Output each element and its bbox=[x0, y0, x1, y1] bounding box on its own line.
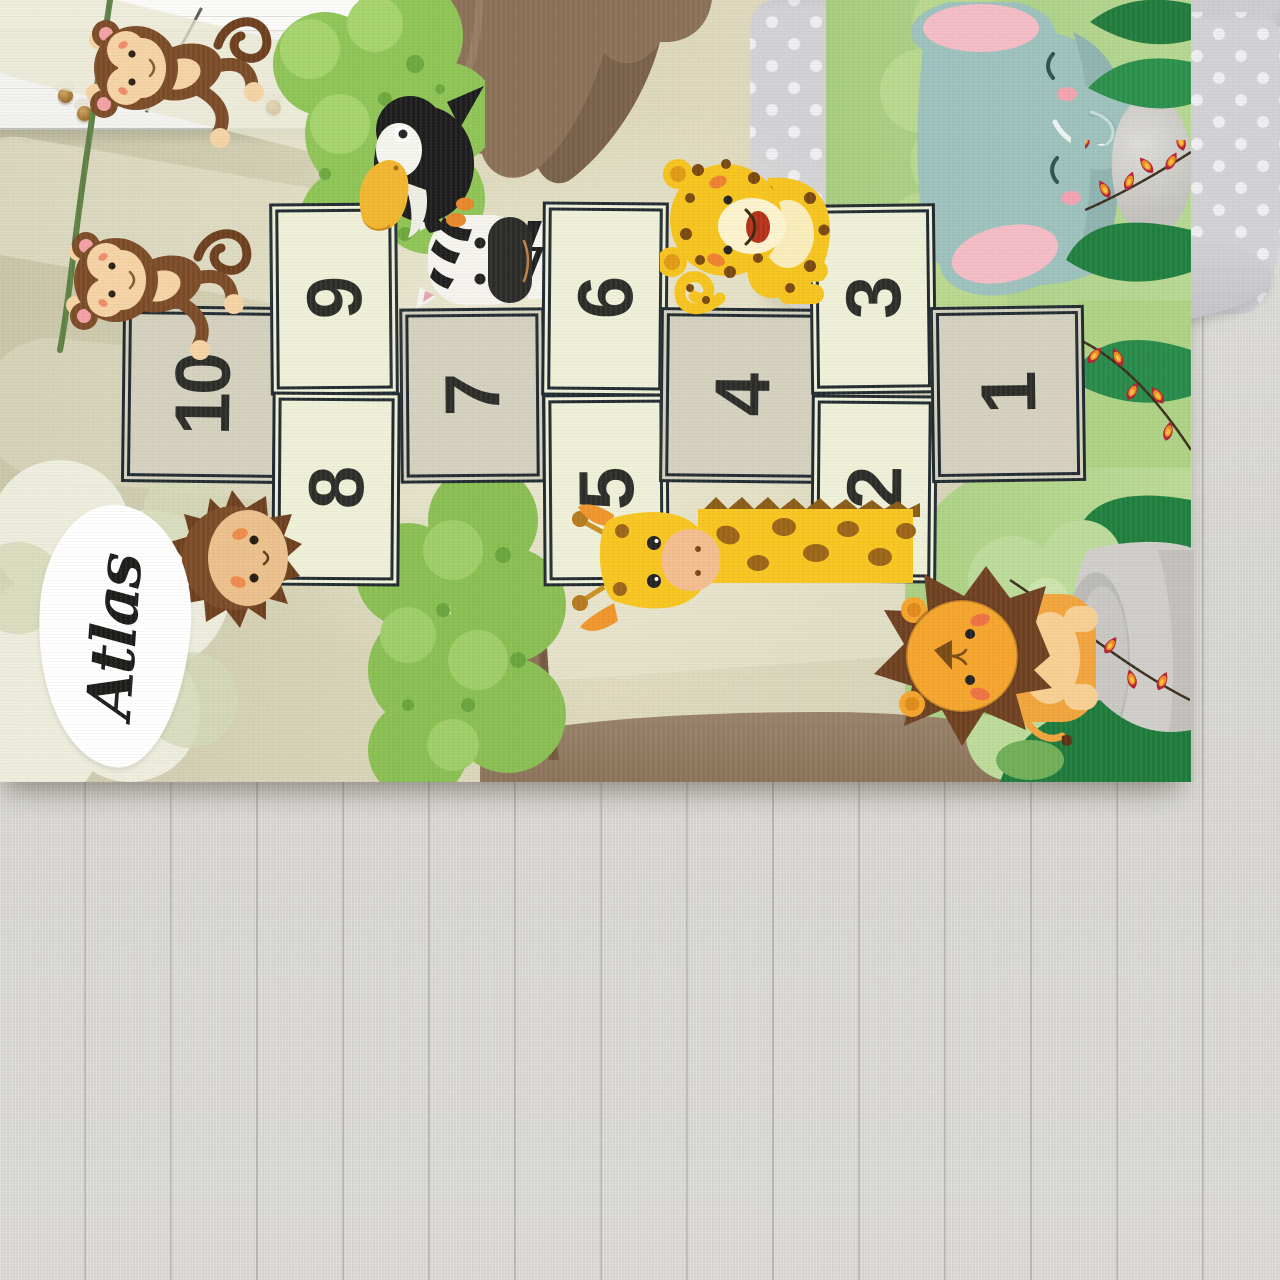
square-number: 1 bbox=[969, 373, 1048, 414]
square-number: 3 bbox=[834, 278, 912, 319]
berry-branch-icon bbox=[1085, 140, 1191, 250]
hopscotch-square-4: 4 bbox=[665, 313, 820, 478]
leopard-cub-illustration bbox=[660, 138, 845, 333]
nursery-room-photo: CUTTY CAT bbox=[0, 0, 1280, 1280]
hanging-monkey-illustration bbox=[68, 0, 293, 200]
hopscotch-square-7: 7 bbox=[405, 313, 539, 477]
lion-cub-illustration bbox=[868, 558, 1108, 758]
hopscotch-play-rug: 10 9 8 7 6 5 4 3 2 1 bbox=[0, 0, 1191, 782]
square-number: 6 bbox=[566, 278, 644, 319]
berry-branch-icon bbox=[1080, 300, 1191, 470]
personalized-name: Atlas bbox=[72, 552, 156, 721]
square-number: 4 bbox=[703, 375, 781, 416]
square-number: 8 bbox=[297, 469, 375, 510]
swinging-monkey-illustration bbox=[48, 212, 273, 412]
hopscotch-square-6: 6 bbox=[547, 208, 663, 391]
square-number: 9 bbox=[295, 278, 373, 319]
toucan-illustration bbox=[352, 72, 487, 272]
dark-leaf-icon bbox=[1070, 0, 1191, 126]
square-number: 7 bbox=[433, 375, 511, 416]
hopscotch-square-1: 1 bbox=[936, 311, 1080, 477]
